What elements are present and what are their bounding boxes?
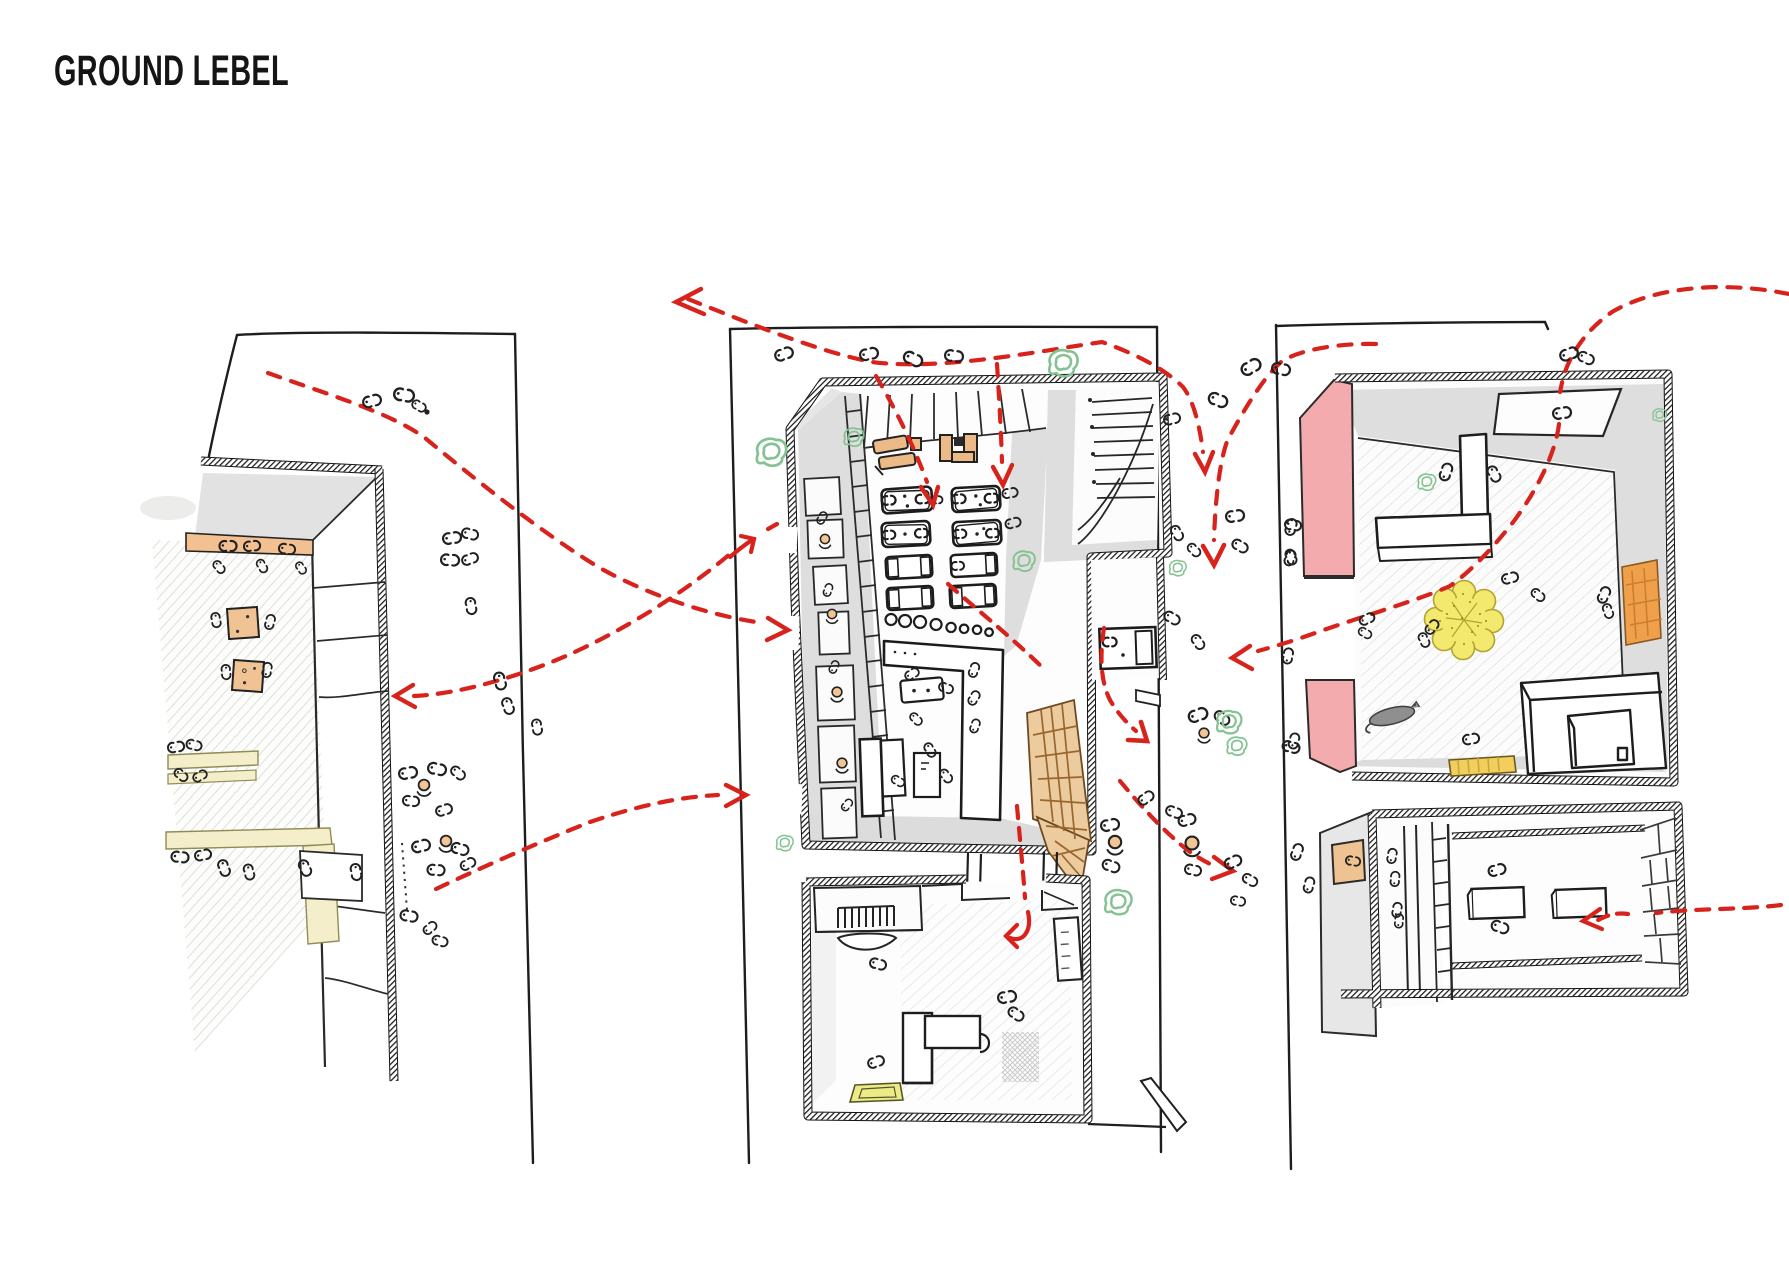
svg-text:GROUND LEBEL: GROUND LEBEL [54, 48, 289, 95]
